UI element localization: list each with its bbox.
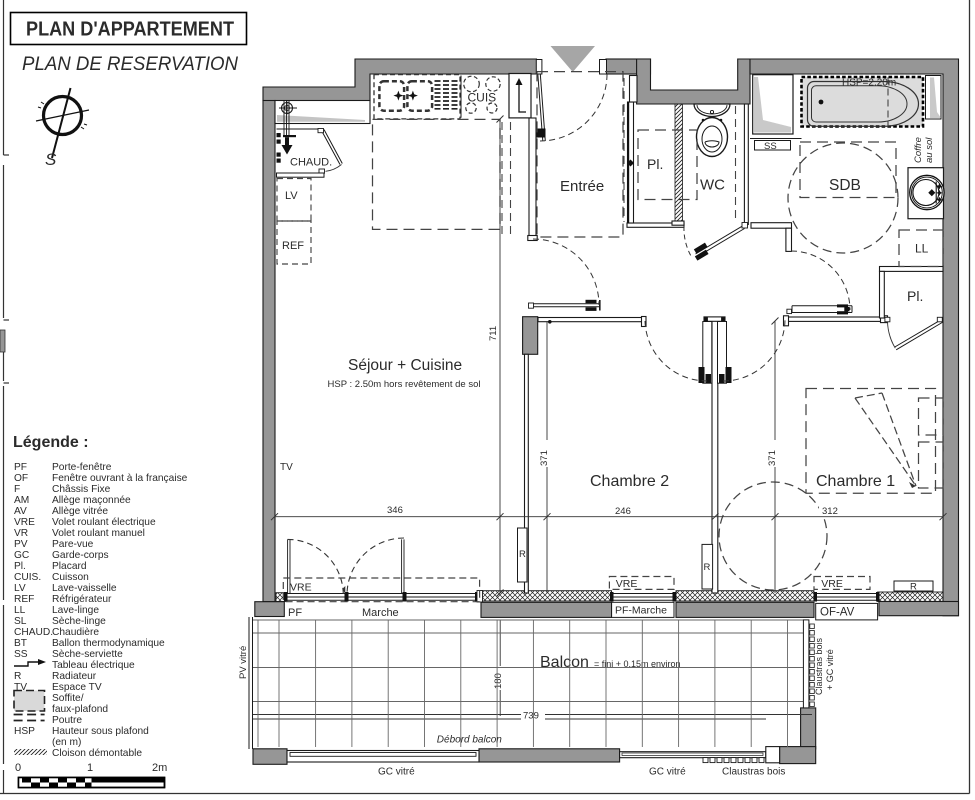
svg-text:Espace TV: Espace TV bbox=[52, 682, 102, 693]
svg-text:CUIS.: CUIS. bbox=[14, 572, 41, 583]
svg-text:TV: TV bbox=[280, 462, 293, 473]
svg-text:371: 371 bbox=[539, 450, 550, 466]
svg-text:0: 0 bbox=[15, 762, 21, 774]
svg-text:Débord balcon: Débord balcon bbox=[437, 735, 502, 746]
svg-text:AM: AM bbox=[14, 495, 29, 506]
svg-text:Tableau électrique: Tableau électrique bbox=[52, 660, 135, 671]
svg-text:faux-plafond: faux-plafond bbox=[52, 704, 108, 715]
svg-text:HSP : 2.50m hors revêtement de: HSP : 2.50m hors revêtement de sol bbox=[328, 379, 481, 390]
svg-text:PLAN DE RESERVATION: PLAN DE RESERVATION bbox=[22, 54, 238, 75]
svg-text:Ballon thermodynamique: Ballon thermodynamique bbox=[52, 638, 165, 649]
svg-text:PV: PV bbox=[14, 539, 28, 550]
svg-text:PF: PF bbox=[288, 607, 302, 619]
svg-text:Entrée: Entrée bbox=[560, 178, 604, 195]
svg-text:Cloison démontable: Cloison démontable bbox=[52, 748, 142, 759]
svg-text:Chaudière: Chaudière bbox=[52, 627, 99, 638]
svg-text:Sèche-serviette: Sèche-serviette bbox=[52, 649, 123, 660]
svg-text:Allège maçonnée: Allège maçonnée bbox=[52, 495, 131, 506]
svg-text:R: R bbox=[704, 562, 711, 573]
svg-text:VRE: VRE bbox=[290, 582, 312, 594]
svg-text:2m: 2m bbox=[152, 762, 167, 774]
svg-text:CHAUD.: CHAUD. bbox=[14, 627, 53, 638]
svg-text:Claustras bois: Claustras bois bbox=[722, 767, 785, 778]
svg-text:F: F bbox=[14, 484, 20, 495]
svg-text:Soffite/: Soffite/ bbox=[52, 693, 84, 704]
svg-text:Châssis Fixe: Châssis Fixe bbox=[52, 484, 111, 495]
svg-text:R: R bbox=[910, 582, 917, 593]
svg-text:PF: PF bbox=[14, 462, 27, 473]
svg-text:CUIS: CUIS bbox=[468, 91, 497, 105]
svg-text:Porte-fenêtre: Porte-fenêtre bbox=[52, 462, 112, 473]
svg-text:PLAN D'APPARTEMENT: PLAN D'APPARTEMENT bbox=[26, 19, 234, 41]
svg-text:WC: WC bbox=[700, 177, 725, 194]
svg-text:GC: GC bbox=[14, 550, 29, 561]
svg-text:Séjour + Cuisine: Séjour + Cuisine bbox=[348, 357, 462, 374]
svg-text:Chambre 2: Chambre 2 bbox=[590, 473, 669, 490]
svg-text:Pl.: Pl. bbox=[14, 561, 26, 572]
svg-text:VR: VR bbox=[14, 528, 28, 539]
svg-text:S: S bbox=[45, 150, 57, 169]
svg-text:739: 739 bbox=[523, 711, 539, 722]
svg-text:LL: LL bbox=[14, 605, 26, 616]
svg-text:VRE: VRE bbox=[616, 578, 638, 590]
svg-text:Sèche-linge: Sèche-linge bbox=[52, 616, 106, 627]
svg-text:SS: SS bbox=[14, 649, 28, 660]
svg-text:LL: LL bbox=[915, 242, 929, 256]
svg-text:au sol: au sol bbox=[924, 137, 935, 163]
svg-text:GC vitré: GC vitré bbox=[378, 767, 415, 778]
svg-text:Claustras bois: Claustras bois bbox=[814, 637, 824, 695]
svg-text:LV: LV bbox=[285, 190, 298, 202]
svg-text:+ GC vitré: + GC vitré bbox=[825, 649, 835, 690]
svg-text:SL: SL bbox=[14, 616, 27, 627]
svg-text:R: R bbox=[14, 671, 21, 682]
svg-text:Placard: Placard bbox=[52, 561, 87, 572]
svg-text:Allège vitrée: Allège vitrée bbox=[52, 506, 108, 517]
svg-text:VRE: VRE bbox=[821, 578, 843, 590]
svg-text:Légende :: Légende : bbox=[13, 434, 89, 451]
svg-text:Poutre: Poutre bbox=[52, 715, 82, 726]
svg-text:PF-Marche: PF-Marche bbox=[615, 605, 667, 617]
svg-text:Volet roulant électrique: Volet roulant électrique bbox=[52, 517, 156, 528]
svg-text:BT: BT bbox=[14, 638, 27, 649]
svg-text:VRE: VRE bbox=[14, 517, 35, 528]
svg-text:1: 1 bbox=[87, 762, 93, 774]
svg-text:REF: REF bbox=[14, 594, 34, 605]
svg-text:REF: REF bbox=[282, 240, 304, 252]
svg-text:Fenêtre ouvrant à la française: Fenêtre ouvrant à la française bbox=[52, 473, 188, 484]
svg-text:SDB: SDB bbox=[829, 177, 861, 194]
svg-text:Marche: Marche bbox=[362, 607, 399, 619]
svg-text:180: 180 bbox=[493, 673, 504, 689]
svg-text:Garde-corps: Garde-corps bbox=[52, 550, 109, 561]
svg-text:246: 246 bbox=[615, 506, 631, 517]
svg-text:Volet roulant manuel: Volet roulant manuel bbox=[52, 528, 145, 539]
svg-text:Cuisson: Cuisson bbox=[52, 572, 89, 583]
svg-text:GC vitré: GC vitré bbox=[649, 767, 686, 778]
svg-text:CHAUD.: CHAUD. bbox=[290, 157, 332, 169]
svg-text:Pl.: Pl. bbox=[647, 156, 663, 172]
svg-text:Radiateur: Radiateur bbox=[52, 671, 97, 682]
svg-text:HSP: HSP bbox=[14, 726, 35, 737]
svg-text:711: 711 bbox=[488, 326, 499, 341]
svg-text:Lave-linge: Lave-linge bbox=[52, 605, 99, 616]
svg-text:(en m): (en m) bbox=[52, 737, 81, 748]
svg-text:LV: LV bbox=[14, 583, 26, 594]
svg-text:Chambre 1: Chambre 1 bbox=[816, 473, 895, 490]
svg-text:AV: AV bbox=[14, 506, 27, 517]
svg-text:HSP=2.20m: HSP=2.20m bbox=[842, 78, 896, 89]
svg-text:312: 312 bbox=[822, 506, 838, 517]
svg-text:Hauteur sous plafond: Hauteur sous plafond bbox=[52, 726, 149, 737]
svg-text:346: 346 bbox=[387, 505, 403, 516]
svg-text:Balcon: Balcon bbox=[540, 654, 589, 671]
svg-text:OF-AV: OF-AV bbox=[820, 607, 855, 619]
svg-text:Réfrigérateur: Réfrigérateur bbox=[52, 594, 112, 605]
svg-text:371: 371 bbox=[767, 450, 778, 466]
svg-text:OF: OF bbox=[14, 473, 28, 484]
svg-text:PV vitré: PV vitré bbox=[238, 646, 249, 679]
svg-text:R: R bbox=[519, 549, 526, 560]
svg-text:Coffre: Coffre bbox=[913, 137, 924, 163]
svg-text:Pare-vue: Pare-vue bbox=[52, 539, 94, 550]
svg-text:Pl.: Pl. bbox=[907, 288, 923, 304]
svg-text:Lave-vaisselle: Lave-vaisselle bbox=[52, 583, 117, 594]
svg-text:SS: SS bbox=[764, 141, 777, 152]
